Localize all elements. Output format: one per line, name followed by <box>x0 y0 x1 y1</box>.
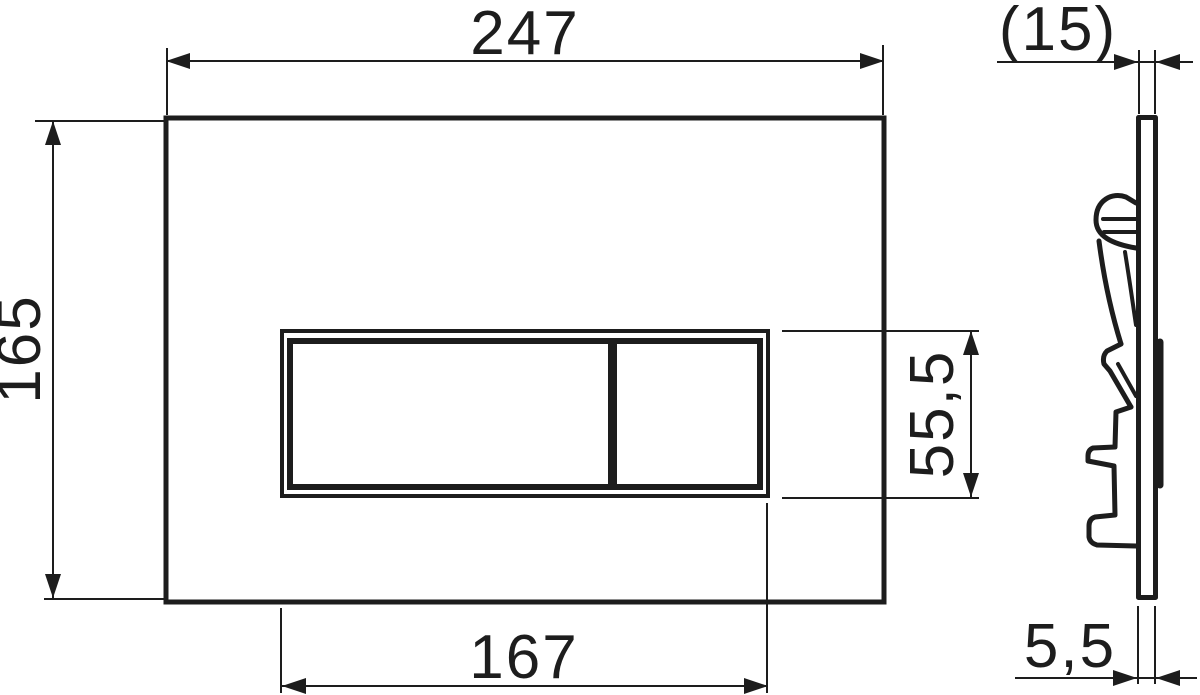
dim-plate-width-arrow-right <box>860 53 884 69</box>
dim-plate-width: 247 <box>166 0 884 115</box>
plate-slab-profile <box>1139 118 1156 598</box>
lower-clip-arm <box>1088 407 1136 546</box>
middle-clip-hook <box>1103 344 1131 407</box>
dim-plate-width-label: 247 <box>470 0 579 68</box>
upper-clip-arm-outer-edge <box>1099 241 1121 344</box>
dim-thickness-label: 5,5 <box>1024 612 1116 681</box>
dim-plate-height: 165 <box>0 121 164 599</box>
upper-clip-head <box>1096 196 1136 248</box>
dim-plate-height-arrow-top <box>45 121 61 145</box>
dim-plate-height-label: 165 <box>0 294 54 403</box>
dim-thickness-arrow-right <box>1156 670 1180 686</box>
dim-window-width-label: 167 <box>469 623 578 692</box>
dim-depth: (15) <box>997 0 1193 114</box>
dim-depth-arrow-right <box>1156 54 1180 70</box>
dim-window-height-label: 55,5 <box>898 350 967 479</box>
dim-window-width-arrow-right <box>744 678 768 694</box>
dim-depth-label: (15) <box>999 0 1117 64</box>
dim-plate-width-arrow-left <box>166 53 190 69</box>
drawing-canvas: 247 165 167 55,5 <box>0 0 1200 695</box>
dim-plate-height-arrow-bottom <box>45 574 61 598</box>
dim-depth-arrow-left <box>1114 54 1138 70</box>
upper-clip-arm-inner-edge <box>1125 252 1136 325</box>
plate-outline <box>166 118 884 602</box>
dim-thickness-arrow-left <box>1113 670 1137 686</box>
front-view <box>166 118 884 602</box>
flush-plate-technical-drawing: 247 165 167 55,5 <box>0 0 1200 695</box>
side-view <box>1088 118 1160 598</box>
dim-thickness: 5,5 <box>1015 606 1197 686</box>
dim-window-width-arrow-left <box>282 678 306 694</box>
